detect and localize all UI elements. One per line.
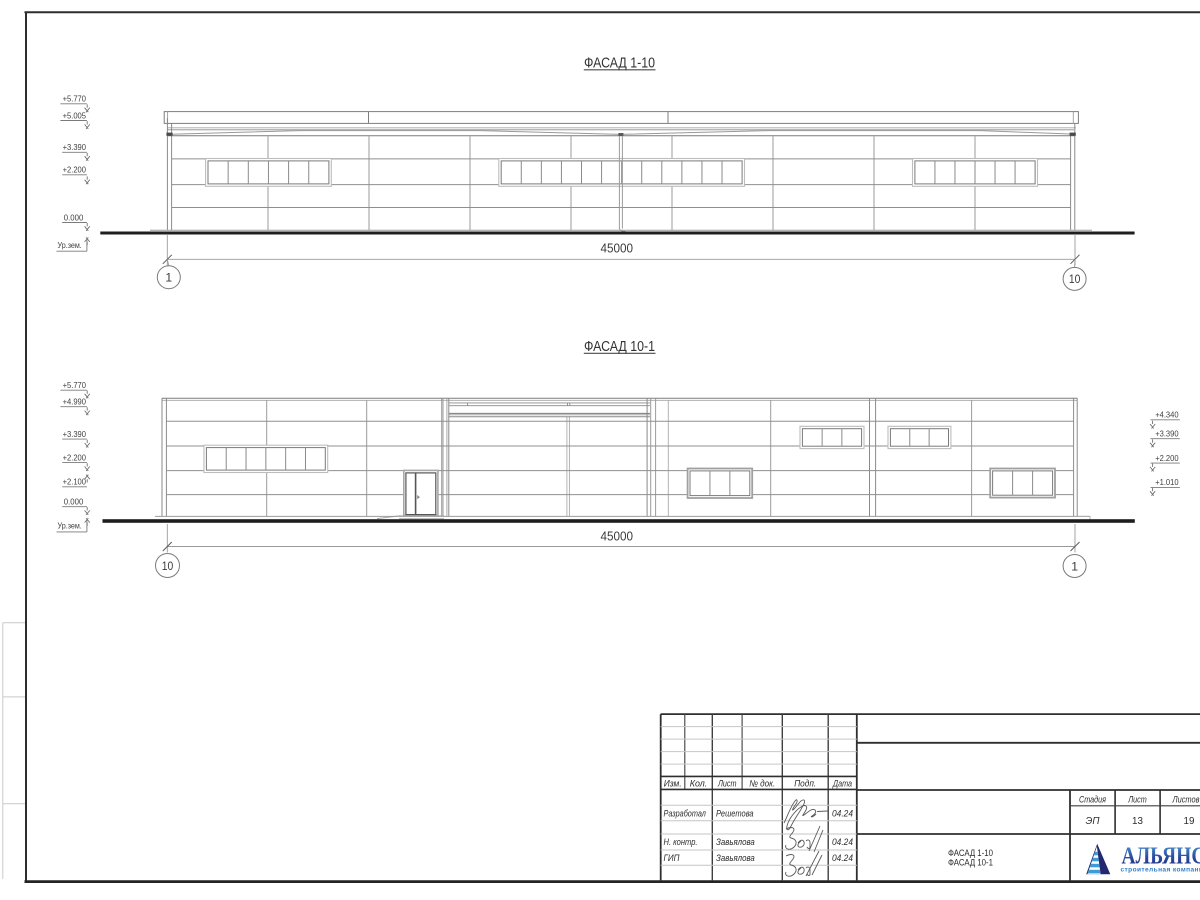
svg-text:+2.200: +2.200 — [63, 165, 87, 175]
svg-text:+5.005: +5.005 — [63, 110, 87, 120]
svg-text:Дата: Дата — [832, 778, 852, 788]
svg-text:45000: 45000 — [601, 529, 634, 543]
svg-text:Подп.: Подп. — [794, 778, 816, 788]
svg-text:04.24: 04.24 — [832, 809, 853, 819]
svg-text:АЛЬЯНС: АЛЬЯНС — [1122, 843, 1200, 870]
svg-text:строительная компания: строительная компания — [1121, 867, 1200, 874]
svg-text:Лист: Лист — [717, 778, 736, 788]
svg-text:+2.200: +2.200 — [1155, 453, 1179, 463]
svg-text:Стадия: Стадия — [1079, 795, 1106, 805]
svg-text:Листов: Листов — [1172, 795, 1200, 805]
svg-text:ФАСАД 10-1: ФАСАД 10-1 — [584, 338, 655, 355]
svg-text:04.24: 04.24 — [832, 853, 853, 863]
svg-text:0.000: 0.000 — [64, 497, 84, 507]
svg-text:+2.100: +2.100 — [63, 477, 87, 487]
svg-text:0.000: 0.000 — [64, 212, 84, 222]
svg-text:+5.770: +5.770 — [63, 380, 87, 390]
svg-text:Завьялова: Завьялова — [716, 837, 755, 847]
svg-text:Завьялова: Завьялова — [716, 853, 755, 863]
svg-text:+3.390: +3.390 — [63, 429, 87, 439]
svg-text:+4.340: +4.340 — [1155, 410, 1179, 420]
svg-text:Разработал: Разработал — [664, 809, 706, 819]
svg-text:13: 13 — [1132, 816, 1143, 827]
svg-text:Кол.: Кол. — [690, 778, 708, 788]
svg-text:Ур.зем.: Ур.зем. — [58, 240, 82, 250]
svg-text:45000: 45000 — [601, 241, 634, 255]
svg-text:10: 10 — [162, 559, 174, 573]
svg-text:10: 10 — [1069, 272, 1081, 286]
svg-text:+4.990: +4.990 — [63, 397, 87, 407]
svg-text:ЭП: ЭП — [1086, 816, 1101, 827]
svg-text:19: 19 — [1184, 816, 1195, 827]
svg-text:Решетова: Решетова — [716, 809, 754, 819]
svg-text:Лист: Лист — [1127, 795, 1146, 805]
svg-text:ГИП: ГИП — [664, 853, 681, 863]
svg-text:Ур.зем.: Ур.зем. — [58, 521, 82, 531]
svg-text:1: 1 — [165, 271, 172, 285]
svg-text:+3.390: +3.390 — [1155, 429, 1179, 439]
svg-text:Н. контр.: Н. контр. — [664, 837, 698, 847]
svg-text:ФАСАД 1-10: ФАСАД 1-10 — [584, 54, 655, 71]
svg-text:№ док.: № док. — [749, 778, 775, 788]
svg-text:ФАСАД 10-1: ФАСАД 10-1 — [948, 857, 993, 867]
svg-text:Изм.: Изм. — [664, 778, 682, 788]
svg-text:04.24: 04.24 — [832, 837, 853, 847]
svg-text:+1.010: +1.010 — [1155, 477, 1179, 487]
svg-text:+2.200: +2.200 — [63, 452, 87, 462]
svg-text:1: 1 — [1071, 559, 1078, 573]
svg-text:+3.390: +3.390 — [63, 142, 87, 152]
svg-text:+5.770: +5.770 — [63, 94, 87, 104]
